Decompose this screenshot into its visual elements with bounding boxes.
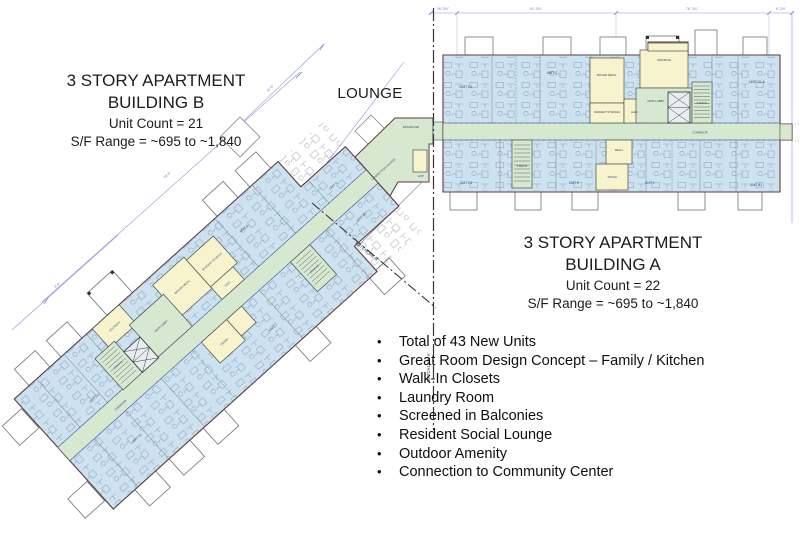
bullet-marker: • (377, 389, 399, 408)
room-label-exit: EXIT (418, 174, 424, 178)
bullet-marker: • (377, 352, 399, 371)
room-label-a-unit-b1: UNIT B1 (750, 183, 762, 187)
building-a-title-line2: BUILDING A (440, 254, 786, 276)
bullet-text: Outdoor Amenity (399, 445, 507, 464)
room-label-a-vestibule: VESTIBULE (657, 58, 672, 62)
bullet-marker: • (377, 407, 399, 426)
list-item: •Walk-In Closets (377, 370, 704, 389)
building-b-unit-count: Unit Count = 21 (4, 115, 308, 133)
building-a-elevators (668, 92, 690, 123)
bullet-text: Great Room Design Concept – Family / Kit… (399, 352, 704, 371)
list-item: •Laundry Room (377, 389, 704, 408)
bullet-marker: • (377, 445, 399, 464)
bullet-marker: • (377, 370, 399, 389)
list-item: •Outdoor Amenity (377, 445, 704, 464)
bullet-text: Laundry Room (399, 389, 494, 408)
building-a-corridor-exit (780, 124, 792, 140)
list-item: •Great Room Design Concept – Family / Ki… (377, 352, 704, 371)
bullet-text: Walk-In Closets (399, 370, 500, 389)
dim-label-b1: 76'-6" (163, 170, 173, 179)
building-a-corridor (443, 123, 780, 140)
room-label-a-unit-l: UNIT L (645, 181, 655, 185)
bullet-marker: • (377, 333, 399, 352)
room-label-a-stair1: STAIR #1 (697, 102, 708, 105)
bullet-text: Screened in Balconies (399, 407, 543, 426)
list-item: •Connection to Community Center (377, 463, 704, 482)
room-label-a-trash: TRASH (607, 175, 616, 179)
dimension-labels-building-a: 26'-3½" 91'-3⅝" 76'-3⅝" 6'-2½" (437, 7, 787, 11)
room-label-a-unit-d1-bot: UNIT D1 (460, 181, 473, 185)
dim-label-a3: 76'-3⅝" (686, 7, 699, 11)
room-label-a-unit-d1a: UNIT D1-A (749, 80, 765, 84)
list-item: •Resident Social Lounge (377, 426, 704, 445)
room-label-a-stair2: STAIR #2 (517, 165, 528, 168)
bullet-text: Resident Social Lounge (399, 426, 552, 445)
list-item: •Screened in Balconies (377, 407, 704, 426)
building-a-callout: 3 STORY APARTMENT BUILDING A Unit Count … (440, 232, 786, 313)
bullet-text: Connection to Community Center (399, 463, 613, 482)
bullet-marker: • (377, 463, 399, 482)
room-label-a-boiler: BOILER MECH. (597, 73, 617, 77)
room-label-bathroom: BATHROOM (403, 125, 420, 129)
feature-bullet-list: •Total of 43 New Units •Great Room Desig… (377, 333, 704, 482)
room-label-a-elec: ELEC. (631, 110, 639, 114)
corridor-link (433, 122, 444, 140)
slide-canvas: 26'-3½" 91'-3⅝" 76'-3⅝" 6'-2½" 76'-6" 8'… (0, 0, 800, 536)
building-b-title-line1: 3 STORY APARTMENT (4, 70, 308, 92)
dim-label-a4: 6'-2½" (776, 7, 787, 11)
bullet-marker: • (377, 426, 399, 445)
building-a-plan: UNIT D1 UNIT C VESTIBULE UNIT D1-A BOILE… (443, 30, 800, 210)
room-label-a-storage: RESIDENT STORAGE (594, 111, 620, 114)
list-item: •Total of 43 New Units (377, 333, 704, 352)
building-b-title-line2: BUILDING B (4, 92, 308, 114)
building-a-sf-range: S/F Range = ~695 to ~1,840 (440, 295, 786, 313)
building-b-sf-range: S/F Range = ~695 to ~1,840 (4, 133, 308, 151)
lounge-callout: LOUNGE (330, 85, 410, 102)
lounge-service-room (413, 150, 427, 172)
room-label-a-unit-c: UNIT C (547, 71, 558, 75)
room-label-a-mech: MECH. (615, 148, 624, 152)
room-label-a-corridor: CORRIDOR (692, 131, 707, 135)
dim-label-a1: 26'-3½" (437, 7, 450, 11)
bullet-text: Total of 43 New Units (399, 333, 536, 352)
room-label-a-unit-d1-top: UNIT D1 (460, 85, 473, 89)
building-b-callout: 3 STORY APARTMENT BUILDING B Unit Count … (4, 70, 308, 151)
room-label-a-unit-e: UNIT E (569, 181, 579, 185)
dim-label-a2: 91'-3⅝" (530, 7, 543, 11)
building-a-title-line1: 3 STORY APARTMENT (440, 232, 786, 254)
room-label-a-lobby: MAIN LOBBY (647, 99, 664, 103)
building-a-unit-count: Unit Count = 22 (440, 277, 786, 295)
corridor-leader-dots (792, 124, 800, 141)
